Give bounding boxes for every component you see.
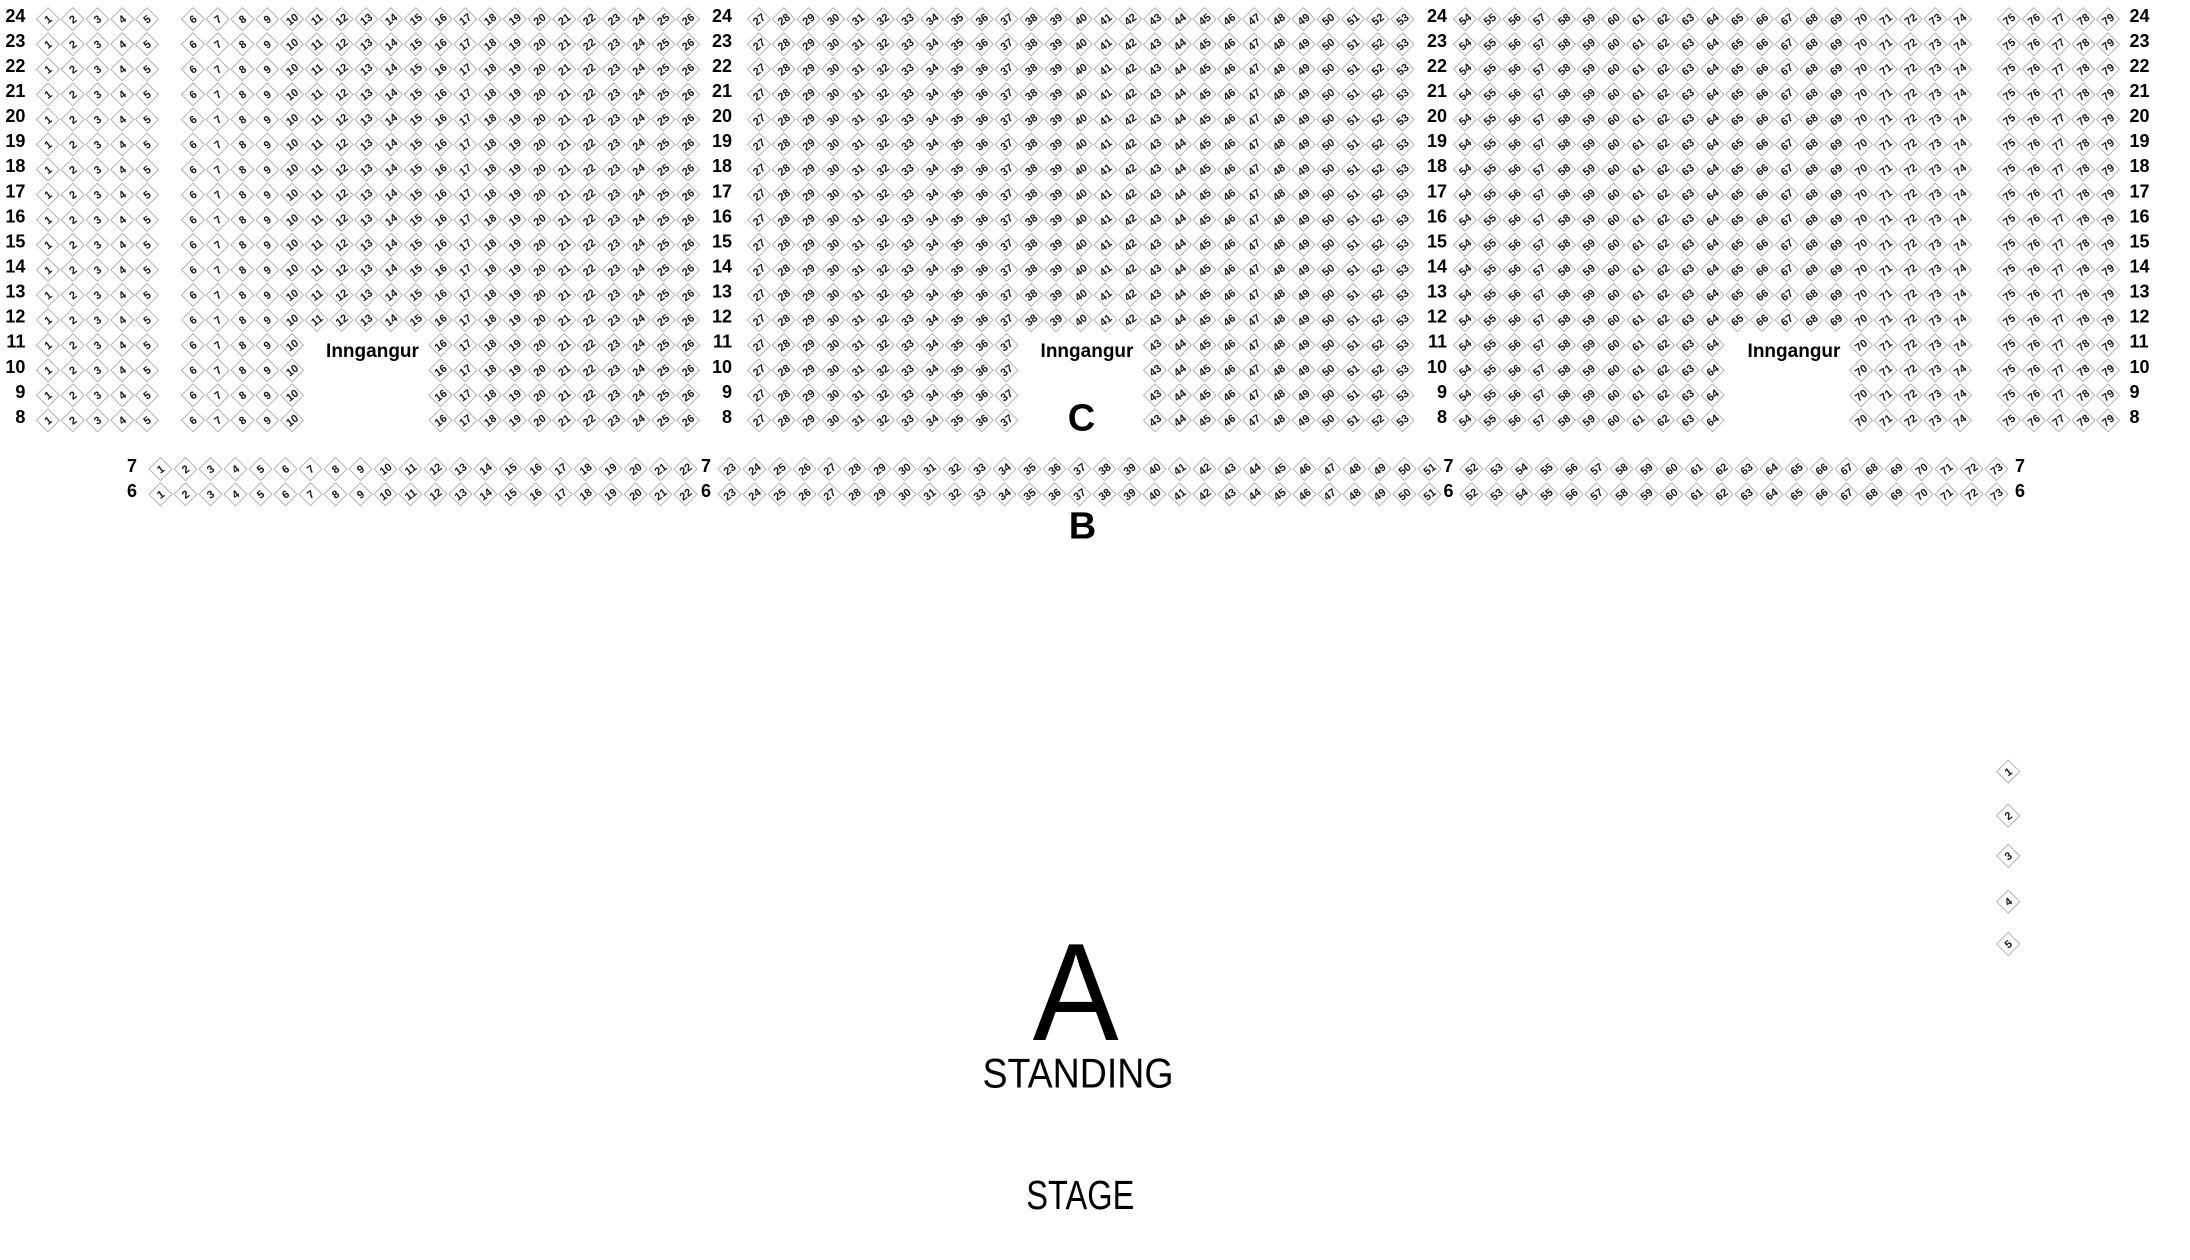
- svg-text:Inngangur: Inngangur: [1041, 341, 1134, 362]
- svg-text:19: 19: [5, 131, 25, 151]
- svg-text:16: 16: [5, 206, 25, 226]
- svg-text:20: 20: [712, 106, 732, 126]
- svg-text:18: 18: [5, 156, 25, 176]
- svg-text:18: 18: [712, 156, 732, 176]
- svg-text:8: 8: [2130, 407, 2140, 427]
- svg-text:12: 12: [712, 307, 732, 327]
- svg-text:15: 15: [712, 231, 732, 251]
- svg-text:22: 22: [2130, 56, 2150, 76]
- svg-text:17: 17: [1427, 181, 1447, 201]
- svg-text:8: 8: [15, 407, 25, 427]
- svg-text:7: 7: [701, 456, 711, 476]
- svg-text:23: 23: [1427, 31, 1447, 51]
- svg-text:6: 6: [2015, 481, 2025, 501]
- svg-text:C: C: [1068, 398, 1095, 440]
- svg-text:14: 14: [712, 257, 732, 277]
- svg-text:18: 18: [2130, 156, 2150, 176]
- svg-text:24: 24: [1427, 6, 1447, 26]
- svg-text:21: 21: [5, 81, 25, 101]
- svg-text:STAGE: STAGE: [1026, 1172, 1134, 1218]
- svg-text:15: 15: [5, 231, 25, 251]
- svg-text:8: 8: [722, 407, 732, 427]
- svg-text:13: 13: [712, 282, 732, 302]
- svg-text:16: 16: [2130, 206, 2150, 226]
- svg-text:13: 13: [5, 282, 25, 302]
- svg-text:24: 24: [712, 6, 732, 26]
- svg-text:Inngangur: Inngangur: [1748, 341, 1841, 362]
- svg-text:11: 11: [6, 332, 25, 352]
- svg-text:13: 13: [2130, 282, 2150, 302]
- svg-text:10: 10: [5, 357, 25, 377]
- svg-text:14: 14: [1427, 257, 1447, 277]
- svg-text:22: 22: [1427, 56, 1447, 76]
- svg-text:15: 15: [1427, 231, 1447, 251]
- svg-text:6: 6: [1443, 481, 1453, 501]
- svg-text:16: 16: [1427, 206, 1447, 226]
- svg-text:A: A: [1033, 915, 1119, 1070]
- svg-text:19: 19: [1427, 131, 1447, 151]
- svg-text:9: 9: [15, 382, 25, 402]
- svg-text:19: 19: [2130, 131, 2150, 151]
- svg-text:21: 21: [712, 81, 732, 101]
- svg-text:10: 10: [712, 357, 732, 377]
- svg-text:9: 9: [1437, 382, 1447, 402]
- svg-text:11: 11: [713, 332, 732, 352]
- svg-text:9: 9: [722, 382, 732, 402]
- svg-text:20: 20: [2130, 106, 2150, 126]
- svg-text:14: 14: [2130, 257, 2150, 277]
- svg-text:7: 7: [127, 456, 137, 476]
- svg-text:24: 24: [2130, 6, 2150, 26]
- svg-text:12: 12: [5, 307, 25, 327]
- svg-text:17: 17: [712, 181, 732, 201]
- svg-text:8: 8: [1437, 407, 1447, 427]
- svg-text:6: 6: [701, 481, 711, 501]
- svg-text:20: 20: [1427, 106, 1447, 126]
- svg-text:18: 18: [1427, 156, 1447, 176]
- svg-text:12: 12: [1427, 307, 1447, 327]
- svg-text:19: 19: [712, 131, 732, 151]
- svg-text:9: 9: [2130, 382, 2140, 402]
- svg-text:14: 14: [5, 257, 25, 277]
- svg-text:22: 22: [712, 56, 732, 76]
- svg-text:7: 7: [2015, 456, 2025, 476]
- svg-text:17: 17: [5, 181, 25, 201]
- svg-text:7: 7: [1443, 456, 1453, 476]
- svg-text:10: 10: [1427, 357, 1447, 377]
- svg-text:13: 13: [1427, 282, 1447, 302]
- svg-text:23: 23: [712, 31, 732, 51]
- svg-text:12: 12: [2130, 307, 2150, 327]
- svg-text:10: 10: [2130, 357, 2150, 377]
- svg-text:24: 24: [5, 6, 25, 26]
- svg-text:15: 15: [2130, 231, 2150, 251]
- svg-text:11: 11: [2130, 332, 2149, 352]
- svg-text:23: 23: [2130, 31, 2150, 51]
- svg-text:16: 16: [712, 206, 732, 226]
- svg-text:11: 11: [1428, 332, 1447, 352]
- svg-text:17: 17: [2130, 181, 2150, 201]
- svg-text:Inngangur: Inngangur: [326, 341, 419, 362]
- svg-text:21: 21: [1427, 81, 1447, 101]
- svg-text:23: 23: [5, 31, 25, 51]
- svg-text:22: 22: [5, 56, 25, 76]
- svg-text:6: 6: [127, 481, 137, 501]
- svg-text:B: B: [1069, 506, 1096, 548]
- svg-text:STANDING: STANDING: [983, 1050, 1174, 1097]
- svg-text:20: 20: [5, 106, 25, 126]
- svg-text:21: 21: [2130, 81, 2150, 101]
